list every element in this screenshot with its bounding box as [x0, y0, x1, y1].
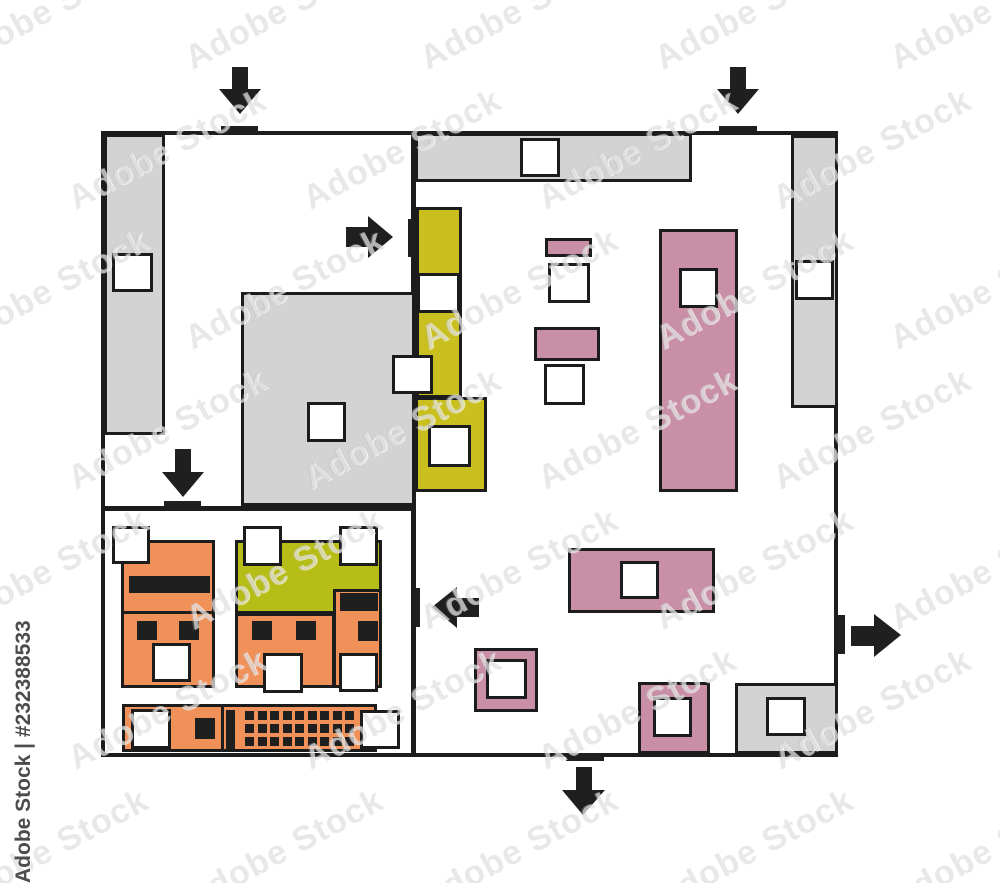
counter-detail-bar [340, 593, 378, 611]
door-marker-bottom [566, 753, 604, 761]
entrance-arrow-top-left [219, 67, 261, 114]
display-box [486, 659, 527, 699]
counter-detail-square [252, 621, 272, 640]
partition-wall-horizontal [101, 506, 416, 511]
display-box [339, 526, 378, 566]
display-box [112, 526, 150, 564]
keypad-key [345, 737, 354, 746]
display-box [520, 138, 560, 177]
display-box [243, 526, 282, 566]
display-box [679, 268, 718, 308]
keypad-key [258, 737, 267, 746]
display-box [544, 364, 585, 405]
keypad-key [245, 711, 254, 720]
entrance-arrow-mid-left [346, 216, 393, 258]
counter-detail-square [137, 621, 157, 640]
keypad-key [345, 724, 354, 733]
keypad-key [258, 711, 267, 720]
keypad-key [308, 724, 317, 733]
door-marker-top-left [221, 126, 258, 134]
display-box [548, 263, 590, 303]
watermark-tile: Adobe Stock [884, 0, 1000, 78]
display-box [653, 697, 692, 737]
keypad-key [245, 724, 254, 733]
door-marker-mid-right [413, 588, 420, 627]
keypad-key [295, 724, 304, 733]
counter-detail-bar [129, 576, 210, 593]
stock-id-watermark: Adobe Stock | #232388533 [12, 631, 38, 883]
watermark-tile: Adobe Stock [0, 781, 155, 883]
display-box [360, 710, 400, 749]
watermark-tile: Adobe Stock [0, 0, 155, 78]
display-box [795, 260, 834, 300]
counter-detail-square [179, 621, 199, 640]
keypad-key [245, 737, 254, 746]
keypad-key [333, 724, 342, 733]
watermark-tile: Adobe Stock [414, 0, 626, 78]
exit-arrow-bottom [562, 767, 605, 815]
keypad-key [320, 737, 329, 746]
door-marker-inner [164, 501, 201, 509]
display-box [620, 561, 659, 599]
keypad-key [283, 737, 292, 746]
display-box [131, 709, 171, 749]
counter-detail-square [358, 621, 378, 641]
entrance-arrow-inner [162, 449, 204, 497]
counter-detail-square [296, 621, 316, 640]
keypad-key [270, 724, 279, 733]
display-box [392, 355, 433, 394]
entrance-arrow-top-right [717, 67, 759, 114]
keypad-key [333, 711, 342, 720]
display-box [766, 697, 806, 736]
register-detail-square [195, 718, 215, 739]
keypad-key [308, 711, 317, 720]
keypad-key [270, 737, 279, 746]
exit-arrow-right [851, 614, 901, 657]
fixture-center-block [241, 292, 415, 506]
keypad-key [295, 737, 304, 746]
register-keypad [245, 711, 354, 746]
floorplan-canvas: Adobe StockAdobe StockAdobe StockAdobe S… [0, 0, 1000, 883]
display-box [263, 653, 303, 693]
table-pink-small-1 [545, 238, 592, 257]
display-box [339, 653, 378, 692]
keypad-key [320, 711, 329, 720]
watermark-tile: Adobe Stock [884, 501, 1000, 638]
keypad-key [283, 711, 292, 720]
watermark-tile: Adobe Stock [179, 781, 391, 883]
display-box [307, 402, 346, 442]
watermark-tile: Adobe Stock [649, 781, 861, 883]
keypad-key [270, 711, 279, 720]
display-box [112, 253, 153, 292]
watermark-tile: Adobe Stock [884, 781, 1000, 883]
watermark-tile: Adobe Stock [884, 221, 1000, 358]
door-marker-right-wall [838, 615, 845, 654]
keypad-key [320, 724, 329, 733]
keypad-key [308, 737, 317, 746]
keypad-key [345, 711, 354, 720]
register-detail-bar [226, 710, 235, 749]
door-marker-mid-left [408, 219, 415, 257]
register-divider-line [221, 704, 224, 752]
display-box [428, 425, 471, 467]
keypad-key [258, 724, 267, 733]
keypad-key [333, 737, 342, 746]
watermark-tile: Adobe Stock [179, 0, 391, 78]
keypad-key [295, 711, 304, 720]
display-box [152, 643, 191, 682]
table-pink-small-2 [534, 327, 600, 361]
door-marker-top-right [719, 126, 757, 134]
keypad-key [283, 724, 292, 733]
display-box [417, 273, 460, 313]
entrance-arrow-mid-right [432, 587, 479, 628]
counter-divider-line [121, 611, 215, 614]
